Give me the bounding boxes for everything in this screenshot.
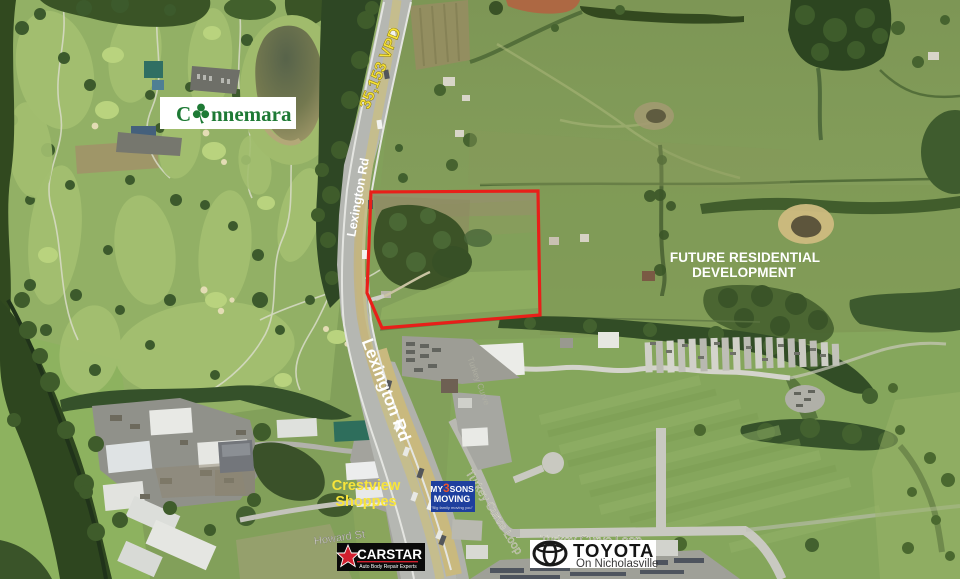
svg-text:Crestview: Crestview: [332, 478, 401, 494]
svg-text:Auto Body Repair Experts: Auto Body Repair Experts: [359, 564, 417, 570]
svg-text:nnemara: nnemara: [211, 102, 292, 126]
svg-text:MOVING: MOVING: [434, 494, 471, 504]
svg-text:MY3SONS: MY3SONS: [430, 481, 474, 495]
svg-text:C: C: [176, 102, 191, 126]
svg-text:DEVELOPMENT: DEVELOPMENT: [692, 265, 797, 280]
svg-text:FUTURE RESIDENTIAL: FUTURE RESIDENTIAL: [670, 250, 820, 265]
svg-text:Shoppes: Shoppes: [335, 494, 396, 510]
svg-text:On Nicholasville: On Nicholasville: [576, 558, 658, 570]
svg-text:"Big family moving you": "Big family moving you": [431, 505, 473, 510]
svg-text:CARSTAR: CARSTAR: [357, 547, 422, 562]
